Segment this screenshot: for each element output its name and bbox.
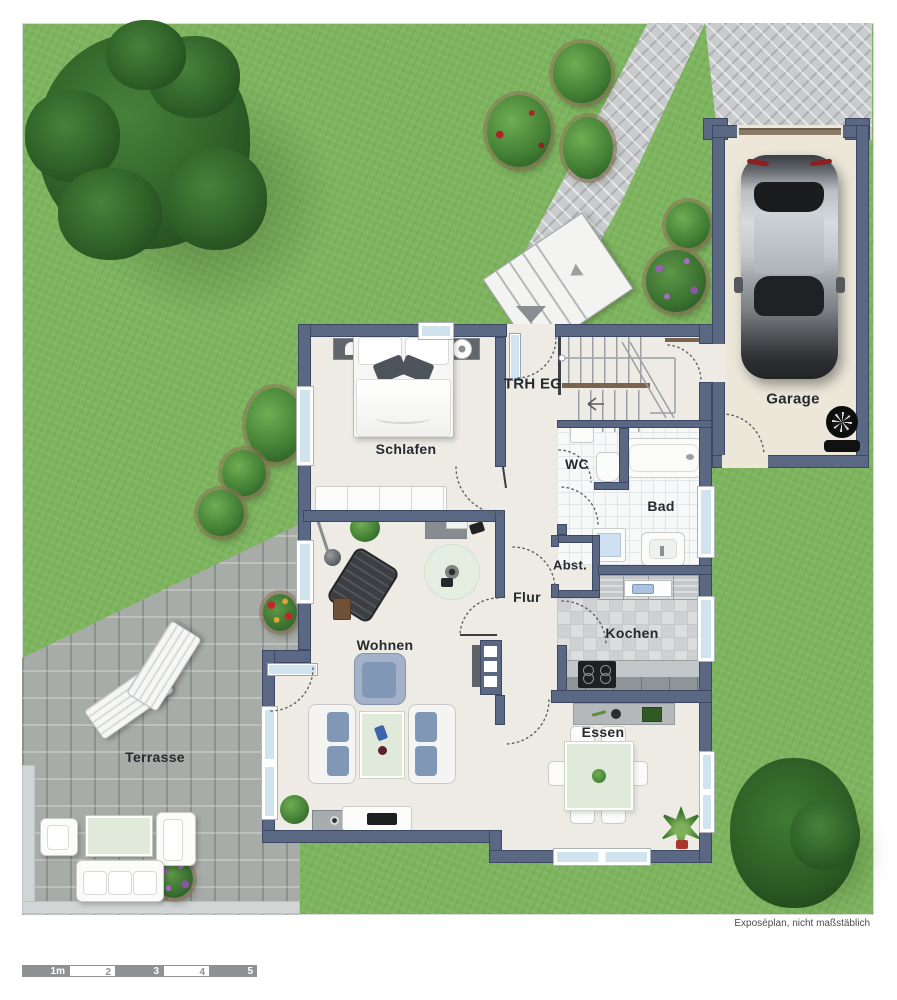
floor-plan-canvas: Schlafen TRH EG WC Bad Abst. Flur Wohnen… [0,0,897,1000]
room-label-essen: Essen [582,724,625,740]
scale-segment: 4 [163,965,210,977]
room-label-bad: Bad [647,498,674,514]
door-arc [505,700,549,744]
stair-railing [622,342,666,418]
room-label-schlafen: Schlafen [376,441,437,457]
door-swing-overlay [0,0,897,1000]
door-arc [456,467,503,514]
stair-direction-arrow [588,398,604,410]
door-arc [562,601,606,645]
room-label-trh-eg: TRH EG [504,376,562,393]
scale-segment: 3 [116,965,163,977]
door-arc [518,338,556,378]
room-label-flur: Flur [513,589,541,605]
door-arc [270,668,313,711]
door-arc [460,598,498,636]
room-label-garage: Garage [766,391,820,408]
scale-segment: 5 [210,965,257,977]
door-arc [513,547,555,589]
room-label-wc: WC [565,456,589,472]
scale-segment: 1m [22,965,69,977]
scale-segment: 2 [69,965,116,977]
stair-railing [630,342,674,418]
stair-start-dot [559,355,565,361]
room-label-kochen: Kochen [605,625,658,641]
scale-bar: 1m 2 3 4 5 [22,965,258,977]
door-leaf [503,467,506,488]
room-label-terrasse: Terrasse [125,749,185,765]
door-arc [668,345,701,381]
room-label-wohnen: Wohnen [357,637,414,653]
disclaimer-text: Exposéplan, nicht maßstäblich [734,918,870,929]
door-arc [560,487,598,524]
room-label-abst: Abst. [553,558,587,573]
door-arc [722,414,764,455]
